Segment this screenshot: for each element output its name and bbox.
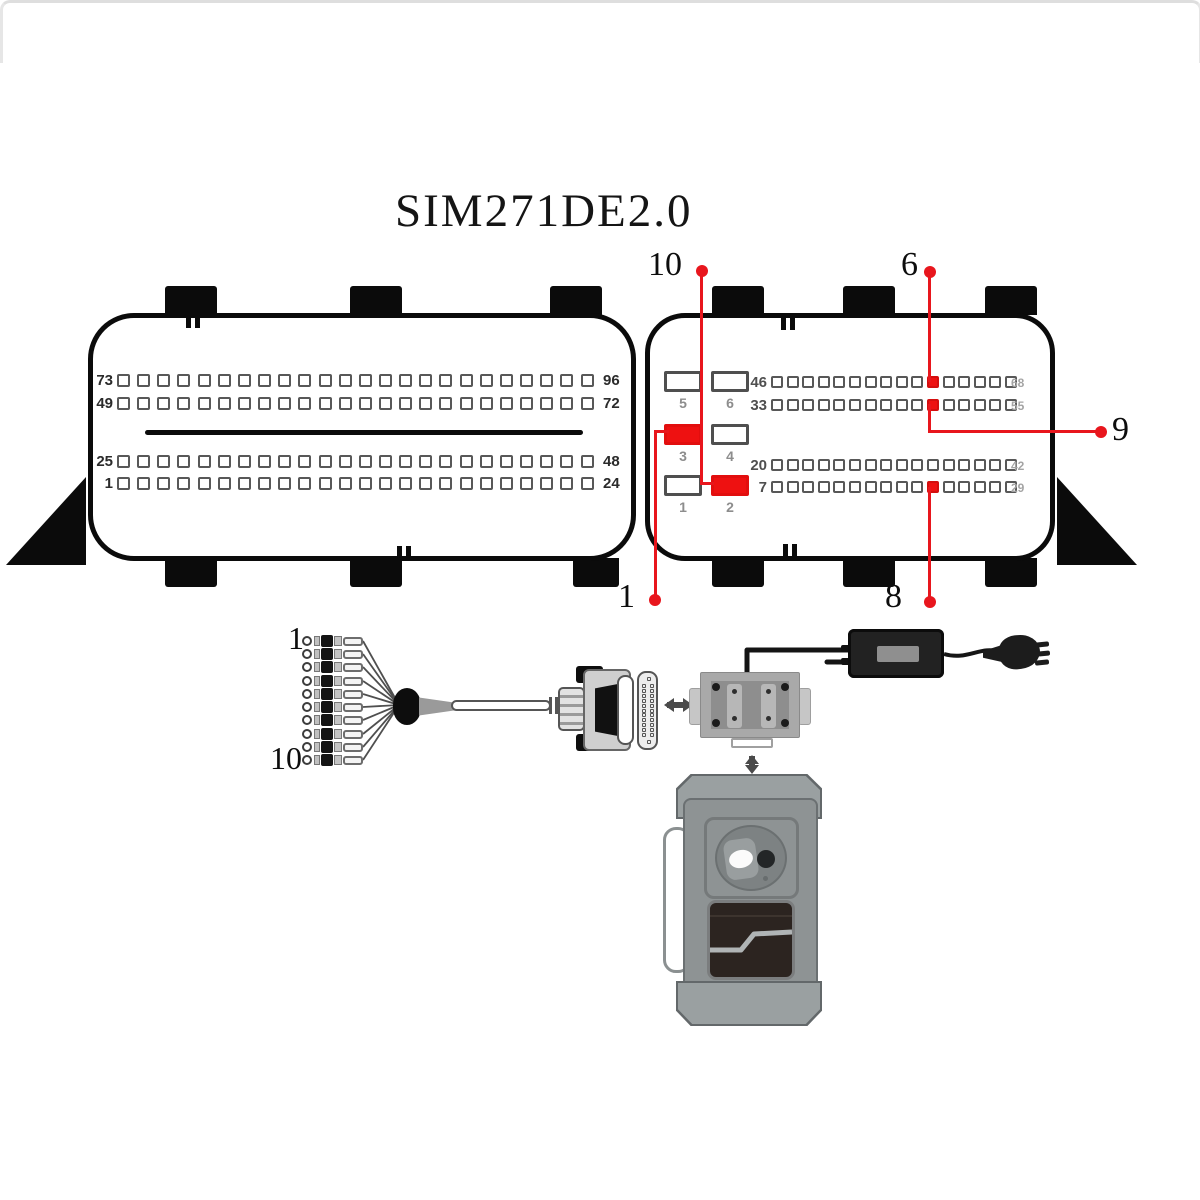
pin-square — [238, 455, 251, 468]
socket-hole — [642, 718, 646, 722]
pin-square — [943, 399, 955, 411]
pin-square — [833, 481, 845, 493]
pin-square — [258, 397, 271, 410]
pin-square — [218, 455, 231, 468]
row-end-label: 72 — [603, 396, 620, 411]
screw-icon — [712, 719, 720, 727]
socket-hole — [650, 704, 654, 708]
pin-square — [117, 374, 130, 387]
pin-square — [359, 477, 372, 490]
socket-hole — [642, 709, 646, 713]
pin-square — [865, 376, 877, 388]
lead-ring-terminal — [302, 729, 312, 739]
camera-lens-dark — [757, 850, 775, 868]
harness-cable — [451, 700, 551, 711]
latch-lever-left — [6, 477, 86, 565]
row-start-label: 49 — [85, 396, 113, 411]
db25-pin-flange — [617, 675, 634, 745]
lead-boot — [321, 675, 333, 687]
pin-square — [849, 376, 861, 388]
arrow-bar — [667, 702, 683, 708]
lead-wire — [363, 641, 399, 705]
pin-square — [540, 397, 553, 410]
pin-square — [818, 481, 830, 493]
pin-square — [399, 397, 412, 410]
pin-square — [218, 397, 231, 410]
socket-hole — [650, 728, 654, 732]
pin-square — [520, 477, 533, 490]
pin-square — [480, 397, 493, 410]
keying-notch — [195, 313, 200, 328]
pin-square — [399, 477, 412, 490]
callout-label-6: 6 — [901, 248, 918, 282]
callout-dot — [649, 594, 661, 606]
callout-line — [928, 430, 1101, 433]
latch-lever-right — [1057, 477, 1137, 565]
pin-square — [258, 374, 271, 387]
screw-icon — [781, 683, 789, 691]
pin-square — [157, 374, 170, 387]
lead-terminal — [343, 730, 363, 739]
socket-hole — [650, 723, 654, 727]
pin-square — [278, 374, 291, 387]
lead-boot — [321, 728, 333, 740]
lead-boot — [321, 688, 333, 700]
lead-ring-terminal — [302, 636, 312, 646]
mounting-tab — [843, 286, 895, 315]
pin-square — [849, 399, 861, 411]
lead-ring-terminal — [302, 662, 312, 672]
plug-body — [997, 633, 1041, 671]
pin-square — [439, 374, 452, 387]
adapter-inner-panel — [711, 681, 789, 729]
key-slot-divider — [710, 903, 792, 977]
pin-square — [359, 397, 372, 410]
lead-sleeve — [334, 755, 342, 765]
harness-ferrule — [419, 694, 454, 719]
lead-terminal — [343, 663, 363, 672]
pin-square — [359, 374, 372, 387]
socket-hole — [650, 718, 654, 722]
pin-square — [137, 477, 150, 490]
pin-square — [771, 376, 783, 388]
pin-square — [911, 481, 923, 493]
pin-square — [849, 459, 861, 471]
keying-notch — [397, 546, 402, 561]
pin-square — [460, 397, 473, 410]
mounting-tab — [712, 286, 764, 315]
pin-square — [540, 477, 553, 490]
slot-pin — [732, 689, 737, 694]
diagram-canvas: SIM271DE2.0 739649722548124 563412 46683… — [0, 0, 1200, 1200]
pin-square — [500, 455, 513, 468]
pin-square — [258, 455, 271, 468]
row-start-label: 46 — [737, 375, 767, 390]
pin-square — [298, 397, 311, 410]
pin-square — [339, 477, 352, 490]
lead-boot — [321, 648, 333, 660]
callout-label-1: 1 — [618, 580, 635, 614]
lead-terminal — [343, 703, 363, 712]
pin-square — [787, 459, 799, 471]
pad-label: 1 — [664, 499, 702, 515]
mounting-tab — [712, 558, 764, 587]
lead-terminal — [343, 650, 363, 659]
pin-square — [439, 397, 452, 410]
db25-backshell — [558, 687, 585, 731]
pin-square — [177, 374, 190, 387]
pin-square — [943, 481, 955, 493]
pin-square — [157, 477, 170, 490]
mounting-tab — [573, 558, 619, 587]
camera-dot — [763, 876, 768, 881]
lead-sleeve — [334, 676, 342, 686]
lead-sleeve — [314, 649, 320, 659]
slot-pin — [732, 716, 737, 721]
pin-square — [419, 397, 432, 410]
slot-pin — [766, 716, 771, 721]
lead-sleeve — [314, 689, 320, 699]
pin-square — [198, 455, 211, 468]
pin-square — [802, 399, 814, 411]
pin-square — [419, 477, 432, 490]
pin-square — [958, 459, 970, 471]
lead-sleeve — [314, 662, 320, 672]
socket-hole — [650, 713, 654, 717]
pin-square — [460, 455, 473, 468]
power-adapter-label — [877, 646, 919, 662]
pin-square — [298, 374, 311, 387]
callout-line — [700, 271, 703, 485]
lead-ring-terminal — [302, 689, 312, 699]
pin-square — [989, 376, 1001, 388]
pin-square — [771, 399, 783, 411]
pin-square — [787, 481, 799, 493]
lead-boot — [321, 741, 333, 753]
pin-square — [218, 374, 231, 387]
pin-square — [419, 455, 432, 468]
screw-icon — [712, 683, 720, 691]
pin-square — [958, 481, 970, 493]
pin-square — [560, 477, 573, 490]
pin-square — [849, 481, 861, 493]
row-start-label: 33 — [737, 398, 767, 413]
pad-label: 3 — [664, 448, 702, 464]
pad-label: 2 — [711, 499, 749, 515]
lead-boot — [321, 754, 333, 766]
connector-divider — [145, 430, 583, 435]
pad — [711, 424, 749, 445]
pin-square — [880, 481, 892, 493]
pin-square — [989, 399, 1001, 411]
lead-sleeve — [314, 702, 320, 712]
pin-square — [439, 455, 452, 468]
plug-prong — [1035, 659, 1049, 665]
lead-boot — [321, 635, 333, 647]
key-slot-panel — [707, 900, 795, 980]
pin-square — [500, 374, 513, 387]
row-start-label: 20 — [737, 458, 767, 473]
pin-square — [896, 376, 908, 388]
pin-square — [359, 455, 372, 468]
pin-square — [198, 477, 211, 490]
pin-square — [117, 455, 130, 468]
callout-line — [654, 430, 657, 599]
pin-square — [399, 374, 412, 387]
callout-dot — [1095, 426, 1107, 438]
lead-sleeve — [314, 676, 320, 686]
callout-line — [700, 482, 714, 485]
callout-label-10: 10 — [648, 248, 682, 282]
device-bottom-bumper — [678, 983, 820, 1024]
socket-hole — [642, 694, 646, 698]
socket-hole — [647, 740, 651, 744]
plug-prong — [1038, 650, 1050, 656]
pin-square — [581, 477, 594, 490]
lead-sleeve — [314, 636, 320, 646]
ecu-left-body — [88, 313, 636, 561]
lead-sleeve — [334, 702, 342, 712]
pin-square — [319, 374, 332, 387]
pin-square — [911, 459, 923, 471]
socket-hole — [642, 699, 646, 703]
lead-sleeve — [334, 715, 342, 725]
cable-lines — [0, 0, 1200, 1200]
socket-hole — [642, 723, 646, 727]
diagram-title: SIM271DE2.0 — [395, 184, 692, 238]
pin-square — [157, 397, 170, 410]
pin-square — [974, 376, 986, 388]
pin-square — [581, 455, 594, 468]
row-start-label: 7 — [737, 480, 767, 495]
pin-square — [787, 399, 799, 411]
callout-line — [928, 272, 931, 382]
pin-square — [927, 459, 939, 471]
row-end-label: 29 — [1011, 481, 1024, 496]
socket-hole — [650, 694, 654, 698]
pad-label: 5 — [664, 395, 702, 411]
cable-ring — [549, 697, 552, 714]
pin-square — [771, 459, 783, 471]
pin-square — [581, 374, 594, 387]
mounting-tab — [985, 558, 1037, 587]
lead-terminal — [343, 677, 363, 686]
socket-hole — [642, 713, 646, 717]
lead-sleeve — [334, 729, 342, 739]
pin-square — [560, 374, 573, 387]
pin-square — [177, 397, 190, 410]
pin-square — [339, 374, 352, 387]
socket-hole — [650, 699, 654, 703]
pin-square — [818, 376, 830, 388]
screw-icon — [781, 719, 789, 727]
pin-square — [177, 477, 190, 490]
lead-sleeve — [334, 689, 342, 699]
mounting-tab — [550, 286, 602, 315]
lead-sleeve — [334, 636, 342, 646]
pin-square — [379, 477, 392, 490]
keying-notch — [783, 544, 788, 559]
row-start-label: 73 — [85, 373, 113, 388]
power-cable — [747, 650, 848, 673]
pin-square — [865, 399, 877, 411]
pin-square — [943, 459, 955, 471]
pin-square — [865, 481, 877, 493]
lead-ring-terminal — [302, 755, 312, 765]
lead-ring-terminal — [302, 676, 312, 686]
pin-square — [958, 376, 970, 388]
pin-square — [880, 459, 892, 471]
socket-hole — [642, 704, 646, 708]
pin-square — [198, 397, 211, 410]
pin-square — [911, 399, 923, 411]
pin-square — [480, 477, 493, 490]
pin-square — [238, 397, 251, 410]
pin-square — [298, 477, 311, 490]
callout-line — [928, 404, 931, 433]
pin-square — [419, 374, 432, 387]
pin-square — [460, 477, 473, 490]
pin-square — [958, 399, 970, 411]
pin-square — [460, 374, 473, 387]
pin-square — [439, 477, 452, 490]
pin-square — [238, 477, 251, 490]
mounting-tab — [350, 558, 402, 587]
pin-square — [911, 376, 923, 388]
pin-square — [480, 455, 493, 468]
pin-square — [157, 455, 170, 468]
pin-square — [896, 459, 908, 471]
callout-dot — [924, 596, 936, 608]
keying-notch — [406, 546, 411, 561]
pin-square — [802, 376, 814, 388]
pin-square — [974, 399, 986, 411]
pin-square — [818, 459, 830, 471]
pin-square — [278, 397, 291, 410]
photo-frame-edge — [0, 0, 1200, 63]
harness-label-last: 10 — [270, 740, 302, 777]
row-end-label: 24 — [603, 476, 620, 491]
socket-hole — [650, 689, 654, 693]
pin-square — [989, 459, 1001, 471]
pin-square — [833, 376, 845, 388]
pin-square — [137, 455, 150, 468]
socket-hole — [650, 733, 654, 737]
lead-terminal — [343, 756, 363, 765]
pin-square — [520, 374, 533, 387]
socket-hole — [642, 684, 646, 688]
lead-ring-terminal — [302, 702, 312, 712]
pin-square — [278, 477, 291, 490]
pin-square — [540, 455, 553, 468]
row-end-label: 96 — [603, 373, 620, 388]
pin-square — [399, 455, 412, 468]
pin-square — [974, 459, 986, 471]
socket-hole — [647, 677, 651, 681]
pad — [664, 371, 702, 392]
pin-square — [896, 481, 908, 493]
socket-hole — [650, 709, 654, 713]
pin-square — [379, 455, 392, 468]
keying-notch — [790, 315, 795, 330]
harness-boot — [393, 688, 421, 725]
pin-square — [880, 376, 892, 388]
socket-hole — [642, 689, 646, 693]
pin-square — [137, 397, 150, 410]
pin-square — [258, 477, 271, 490]
keying-notch — [781, 315, 786, 330]
pin-square — [500, 397, 513, 410]
lead-terminal — [343, 690, 363, 699]
pin-square — [480, 374, 493, 387]
pin-square — [560, 455, 573, 468]
pin-square — [974, 481, 986, 493]
lead-sleeve — [334, 662, 342, 672]
lead-ring-terminal — [302, 649, 312, 659]
callout-line — [928, 487, 931, 599]
pin-square — [865, 459, 877, 471]
pin-square — [238, 374, 251, 387]
pin-square — [298, 455, 311, 468]
pad-red — [664, 424, 702, 445]
row-end-label: 55 — [1011, 399, 1024, 414]
lead-terminal — [343, 716, 363, 725]
pin-square — [880, 399, 892, 411]
slot-pin — [766, 689, 771, 694]
keying-notch — [186, 313, 191, 328]
callout-label-9: 9 — [1112, 413, 1129, 447]
lead-terminal — [343, 637, 363, 646]
lead-sleeve — [334, 649, 342, 659]
lead-sleeve — [314, 729, 320, 739]
ecu-right-body — [645, 313, 1055, 561]
lead-boot — [321, 661, 333, 673]
plug-prong — [1035, 641, 1049, 647]
pin-square — [581, 397, 594, 410]
lead-sleeve — [314, 715, 320, 725]
pin-square — [117, 477, 130, 490]
pin-square — [278, 455, 291, 468]
db25-female-strip — [637, 671, 658, 750]
lead-sleeve — [334, 742, 342, 752]
pin-square — [339, 397, 352, 410]
mounting-tab — [165, 558, 217, 587]
lead-terminal — [343, 743, 363, 752]
pin-square — [771, 481, 783, 493]
mounting-tab — [165, 286, 217, 315]
pin-square — [319, 477, 332, 490]
pin-square — [319, 397, 332, 410]
pin-square — [218, 477, 231, 490]
pin-square — [177, 455, 190, 468]
pin-square — [989, 481, 1001, 493]
row-start-label: 1 — [85, 476, 113, 491]
socket-hole — [642, 728, 646, 732]
pin-square — [500, 477, 513, 490]
pin-square — [896, 399, 908, 411]
row-start-label: 25 — [85, 454, 113, 469]
pin-square — [339, 455, 352, 468]
pin-square — [943, 376, 955, 388]
pin-square — [379, 374, 392, 387]
row-end-label: 48 — [603, 454, 620, 469]
lead-sleeve — [314, 742, 320, 752]
pin-square — [137, 374, 150, 387]
pin-square — [802, 481, 814, 493]
pin-square — [560, 397, 573, 410]
mounting-tab — [350, 286, 402, 315]
pin-square — [117, 397, 130, 410]
